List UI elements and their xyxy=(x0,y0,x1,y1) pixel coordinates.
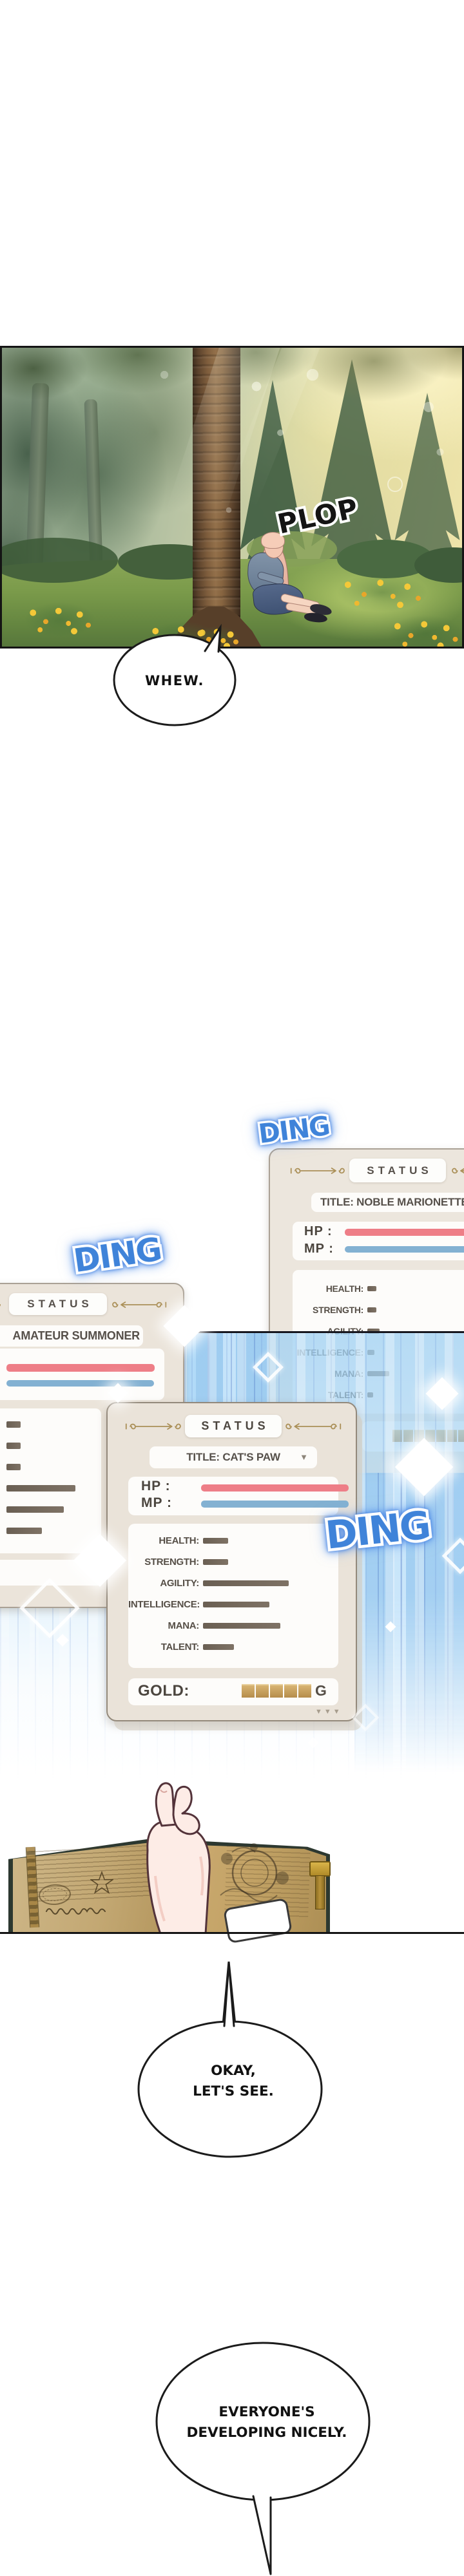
title-box: TITLE: CAT'S PAW ▼ xyxy=(150,1446,317,1468)
gold-box: GOLD: G xyxy=(128,1678,338,1705)
svg-text:DING: DING xyxy=(324,1502,432,1558)
sparkle-icon xyxy=(385,1622,396,1633)
sparkle-icon xyxy=(308,1738,319,1748)
bokeh-lights xyxy=(2,348,462,647)
hp-mp-box: HP : MP : xyxy=(128,1477,338,1515)
stat-label: AGILITY: xyxy=(128,1578,203,1589)
stat-bar xyxy=(367,1392,373,1397)
flourish-icon xyxy=(289,1163,347,1179)
hand xyxy=(106,1779,235,1934)
hp-mp-box xyxy=(0,1349,164,1400)
stat-bar xyxy=(203,1644,234,1650)
status-header-label: STATUS xyxy=(363,1164,432,1177)
ding-sfx-text: DING xyxy=(65,1221,169,1289)
gold-square-icon xyxy=(447,1430,457,1442)
title-value: CAT'S PAW xyxy=(222,1451,280,1464)
status-header: STATUS xyxy=(349,1159,446,1182)
speech-bubble-nicely: EVERYONE'S DEVELOPING NICELY. xyxy=(150,2335,377,2576)
stat-bar xyxy=(367,1371,389,1376)
stat-bar xyxy=(6,1528,42,1534)
stat-row: AGILITY: xyxy=(128,1573,338,1594)
svg-text:DING: DING xyxy=(256,1110,331,1150)
stat-row: STRENGTH: xyxy=(128,1551,338,1573)
stats-box xyxy=(0,1408,101,1553)
book-scene xyxy=(0,1777,464,1934)
gold-square-icon xyxy=(256,1684,269,1698)
stat-label: INTELLIGENCE: xyxy=(293,1347,367,1358)
status-header-label: STATUS xyxy=(23,1298,92,1311)
stat-bar xyxy=(367,1350,374,1355)
stat-label: STRENGTH: xyxy=(293,1305,367,1315)
hp-bar xyxy=(201,1484,349,1492)
gold-square-icon xyxy=(284,1684,297,1698)
bokeh-hexagon xyxy=(387,477,403,492)
title-label: TITLE: xyxy=(186,1451,220,1464)
svg-text:DING: DING xyxy=(72,1231,164,1280)
stat-label: AGILITY: xyxy=(293,1326,367,1336)
book-strap xyxy=(315,1875,325,1909)
book-clasp xyxy=(309,1861,331,1877)
stat-row: INTELLIGENCE: xyxy=(128,1594,338,1615)
stat-row xyxy=(6,1499,75,1520)
gold-square-icon xyxy=(403,1430,413,1442)
panel-border-line xyxy=(0,1932,464,1934)
stat-row: TALENT: xyxy=(128,1636,338,1658)
forest-panel: PLOP xyxy=(0,346,464,649)
book-script-decoration xyxy=(44,1904,115,1917)
stat-bar xyxy=(6,1421,21,1428)
gold-square-icon xyxy=(270,1684,283,1698)
stat-label: TALENT: xyxy=(293,1390,367,1400)
speech-bubble-whew: WHEW. xyxy=(108,622,245,735)
stat-bar xyxy=(367,1329,380,1334)
hp-bar xyxy=(6,1364,155,1372)
stat-bar xyxy=(6,1464,21,1470)
gold-square-icon xyxy=(298,1684,311,1698)
mp-bar xyxy=(345,1246,464,1253)
title-box: TITLE: NOBLE MARIONETTE xyxy=(311,1193,464,1212)
status-header-label: STATUS xyxy=(197,1419,269,1433)
flourish-icon xyxy=(449,1163,464,1179)
hp-label: HP : xyxy=(304,1224,333,1239)
gold-square-icon xyxy=(458,1430,464,1442)
stat-label: MANA: xyxy=(293,1368,367,1379)
title-label: TITLE: xyxy=(320,1196,354,1209)
gold-unit: G xyxy=(315,1682,327,1700)
stat-row xyxy=(6,1414,75,1435)
stat-label: STRENGTH: xyxy=(128,1557,203,1567)
stat-row xyxy=(6,1435,75,1456)
mp-bar xyxy=(6,1380,154,1387)
stat-label: HEALTH: xyxy=(128,1535,203,1546)
title-value: AMATEUR SUMMONER xyxy=(13,1329,140,1343)
gold-square-icon xyxy=(242,1684,255,1698)
whew-text: WHEW. xyxy=(145,673,204,688)
svg-text:PLOP: PLOP xyxy=(275,492,361,540)
stats-box: HEALTH:STRENGTH:AGILITY:INTELLIGENCE:MAN… xyxy=(128,1524,338,1668)
stat-bar xyxy=(6,1443,21,1449)
stat-bar xyxy=(203,1602,269,1607)
stats-list xyxy=(6,1414,75,1541)
title-dropdown-arrow-icon[interactable]: ▼ xyxy=(300,1452,308,1462)
stat-row xyxy=(6,1520,75,1541)
stat-label: MANA: xyxy=(128,1620,203,1631)
comic-page: PLOP WHEW. DING STATUS TITLE: NOBLE MARI… xyxy=(0,0,464,2576)
okay-text-line2: LET'S SEE. xyxy=(193,2083,274,2099)
okay-text-line1: OKAY, xyxy=(211,2063,256,2079)
stat-row xyxy=(6,1456,75,1477)
stat-bar xyxy=(367,1286,376,1291)
stat-row: HEALTH: xyxy=(293,1278,464,1299)
stat-label: TALENT: xyxy=(128,1642,203,1653)
nicely-text-line2: DEVELOPING NICELY. xyxy=(187,2425,347,2441)
gold-squares xyxy=(242,1684,313,1698)
flourish-icon xyxy=(283,1419,342,1434)
stat-row xyxy=(6,1477,75,1499)
nicely-text-line1: EVERYONE'S xyxy=(218,2404,314,2420)
gold-label: GOLD: xyxy=(138,1682,189,1700)
stat-bar xyxy=(6,1506,64,1513)
stat-row: INTELLIGENCE: xyxy=(293,1341,464,1363)
flourish-icon xyxy=(110,1297,168,1312)
stat-bar xyxy=(203,1623,280,1629)
stat-bar xyxy=(367,1307,376,1312)
hp-label: HP : xyxy=(141,1479,171,1494)
stat-bar xyxy=(203,1559,228,1565)
speech-bubble-okay: OKAY, LET'S SEE. xyxy=(132,1958,332,2164)
stat-label: HEALTH: xyxy=(293,1283,367,1294)
stat-row: HEALTH: xyxy=(128,1530,338,1551)
title-box: AMATEUR SUMMONER xyxy=(0,1325,143,1347)
status-window-cat: STATUS TITLE: CAT'S PAW ▼ HP : MP : HEAL… xyxy=(106,1402,357,1721)
mp-label: MP : xyxy=(304,1242,334,1256)
stat-bar xyxy=(203,1580,289,1586)
status-header: STATUS xyxy=(9,1293,107,1315)
title-value: NOBLE MARIONETTE xyxy=(356,1196,464,1209)
more-arrows-icon[interactable]: ▼▼▼ xyxy=(315,1708,342,1716)
mp-label: MP : xyxy=(141,1495,172,1511)
stats-list: HEALTH:STRENGTH:AGILITY:INTELLIGENCE:MAN… xyxy=(128,1530,338,1658)
stat-bar xyxy=(203,1538,228,1544)
stat-row: AGILITY: xyxy=(293,1320,464,1341)
stat-row: STRENGTH: xyxy=(293,1299,464,1320)
gold-square-icon xyxy=(392,1430,402,1442)
sparkle-icon xyxy=(56,1634,69,1647)
sparkle-icon xyxy=(442,1538,464,1575)
hp-mp-box: HP : MP : xyxy=(293,1222,464,1260)
gold-box xyxy=(362,1421,464,1452)
hp-bar xyxy=(345,1229,464,1236)
gold-square-icon xyxy=(436,1430,446,1442)
status-header: STATUS xyxy=(185,1415,282,1437)
gold-squares xyxy=(392,1430,464,1442)
stat-label: INTELLIGENCE: xyxy=(128,1599,203,1610)
stat-bar xyxy=(6,1485,75,1492)
flourish-icon xyxy=(124,1419,184,1434)
stat-row: MANA: xyxy=(128,1615,338,1636)
ding-sfx-text: DING xyxy=(320,1493,434,1566)
